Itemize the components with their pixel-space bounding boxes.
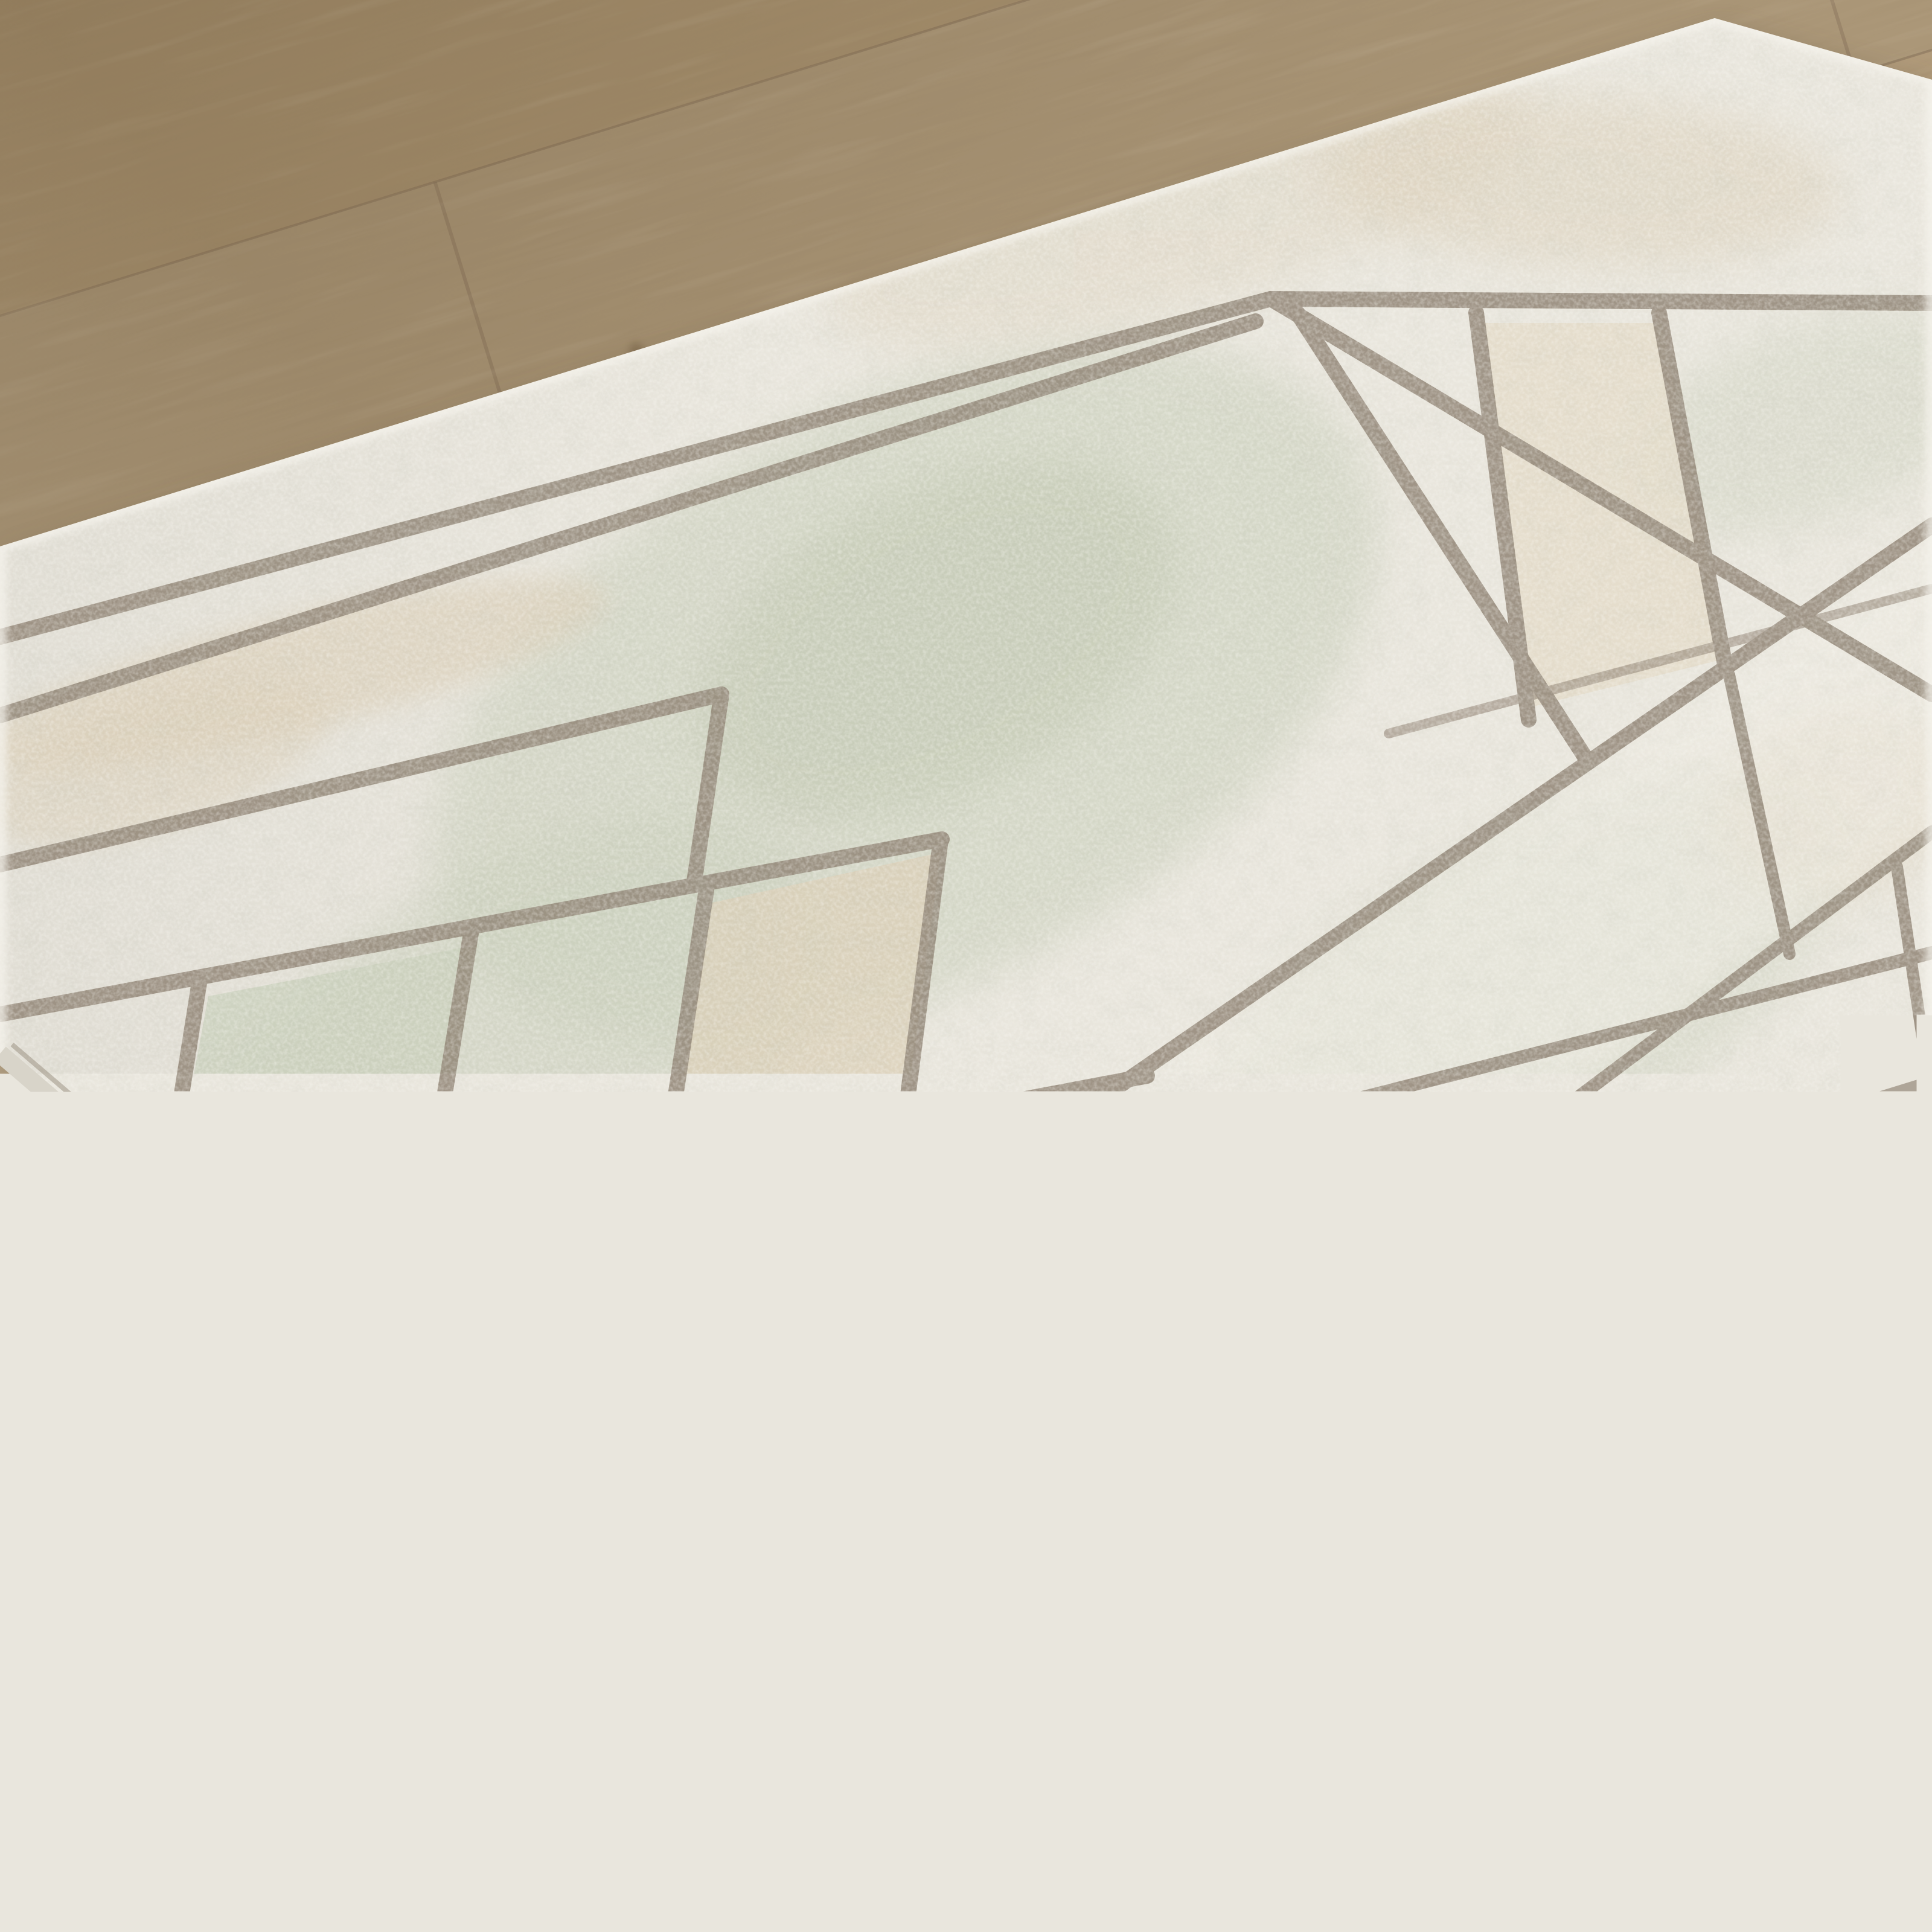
rug-product-photo [0,0,1932,1932]
scene [0,0,1932,1932]
